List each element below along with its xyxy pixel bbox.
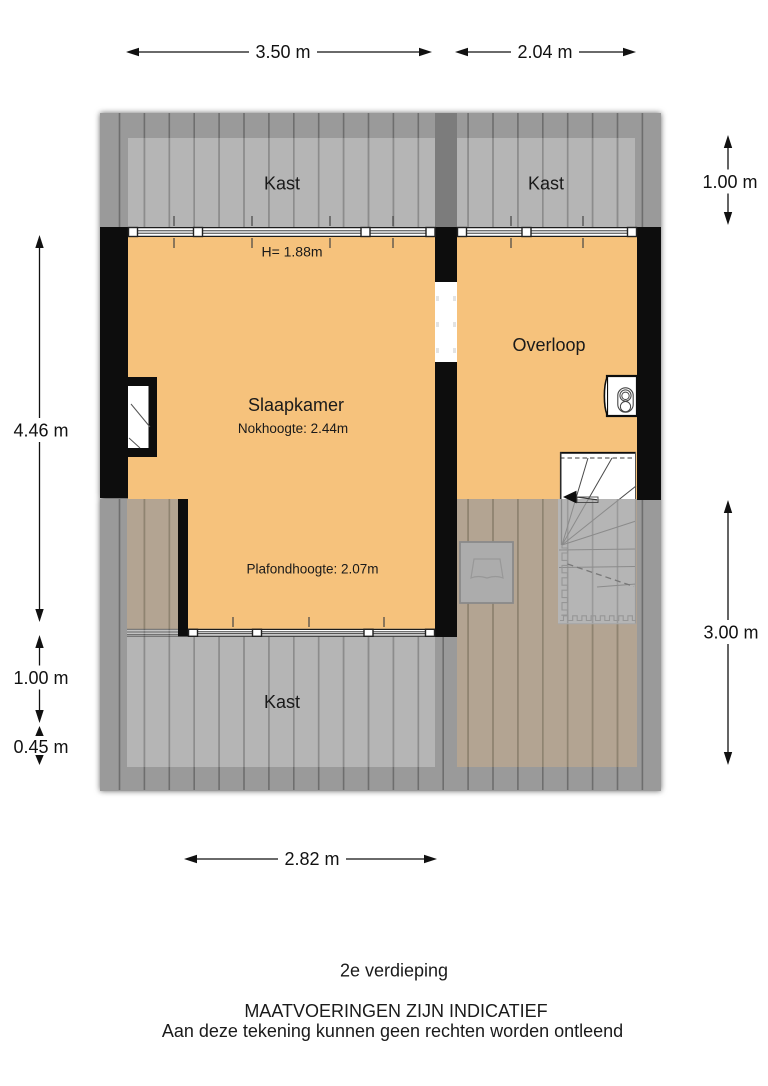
svg-text:Nokhoogte: 2.44m: Nokhoogte: 2.44m	[238, 421, 348, 436]
svg-text:4.46 m: 4.46 m	[13, 421, 68, 441]
svg-text:1.00 m: 1.00 m	[13, 668, 68, 688]
svg-text:1.00 m: 1.00 m	[702, 172, 757, 192]
svg-text:Kast: Kast	[264, 692, 300, 712]
svg-text:Overloop: Overloop	[512, 335, 585, 355]
svg-text:Aan deze tekening kunnen geen: Aan deze tekening kunnen geen rechten wo…	[162, 1021, 623, 1041]
svg-text:Slaapkamer: Slaapkamer	[248, 395, 344, 415]
svg-text:Kast: Kast	[264, 174, 300, 194]
svg-text:H= 1.88m: H= 1.88m	[261, 244, 322, 260]
svg-text:Plafondhoogte: 2.07m: Plafondhoogte: 2.07m	[246, 562, 378, 577]
svg-text:MAATVOERINGEN ZIJN INDICATIEF: MAATVOERINGEN ZIJN INDICATIEF	[244, 1001, 547, 1021]
svg-text:2e verdieping: 2e verdieping	[340, 961, 448, 981]
svg-text:3.50 m: 3.50 m	[255, 42, 310, 62]
svg-text:2.04 m: 2.04 m	[517, 42, 572, 62]
svg-text:0.45 m: 0.45 m	[13, 737, 68, 757]
svg-text:Kast: Kast	[528, 174, 564, 194]
svg-text:2.82 m: 2.82 m	[284, 849, 339, 869]
svg-text:3.00 m: 3.00 m	[703, 623, 758, 643]
